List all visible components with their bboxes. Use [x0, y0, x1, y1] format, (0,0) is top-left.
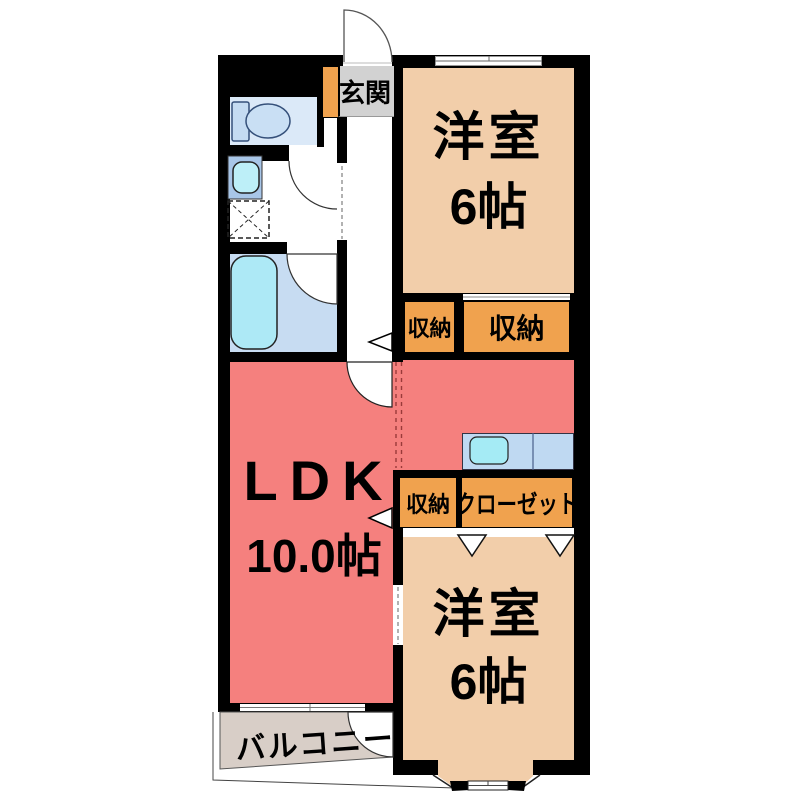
- bathroom: [230, 254, 337, 352]
- washing-machine-pan-icon: [228, 201, 269, 238]
- washbasin-unit-icon: [228, 156, 262, 199]
- door-ldk-bedroom-sliding: [393, 585, 403, 645]
- western-room-bottom-label: 洋室: [403, 578, 574, 640]
- window-to-balcony: [240, 704, 365, 711]
- wall-bath-right: [337, 254, 347, 360]
- bay-window-corner-right: [508, 781, 526, 791]
- washbasin-sink-icon: [233, 162, 259, 193]
- entrance-door-arc: [344, 10, 392, 62]
- ldk-size: 10.0帖: [220, 524, 408, 582]
- wall-right: [574, 55, 590, 775]
- wall-bath-bottom: [218, 352, 347, 362]
- ldk-label: LDK: [225, 448, 403, 512]
- bay-window-glass: [468, 781, 508, 790]
- western-room-bottom-size: 6帖: [403, 648, 574, 708]
- floor-plan: 玄関 洋室 6帖 収納 収納 LDK 10.0帖 収納 クローゼット 洋室 6帖…: [0, 0, 800, 800]
- entrance-label: 玄関: [338, 66, 392, 116]
- storage-mid-label: 収納: [400, 478, 456, 527]
- wall-wash-bath-divider: [218, 242, 287, 254]
- storage-top-small-label: 収納: [405, 302, 454, 352]
- storage-top-large-label: 収納: [464, 302, 569, 352]
- bay-window-glass-line: [468, 781, 508, 786]
- wall-top-left-block: [218, 55, 323, 97]
- wall-hall-left-upper: [337, 116, 347, 165]
- wall-hall-left-mid: [337, 240, 347, 254]
- closet-door-band: [403, 528, 574, 537]
- western-room-top-size: 6帖: [403, 172, 574, 234]
- kitchen-counter: [462, 433, 574, 470]
- door-swing-marker-hall: [369, 333, 392, 351]
- western-room-top-label: 洋室: [403, 100, 574, 164]
- washing-machine-cross-icon: [228, 201, 269, 238]
- balcony-label: バルコニー: [229, 712, 402, 769]
- bay-window-sides: [433, 775, 540, 790]
- toilet-room: [230, 95, 317, 145]
- wall-bottom-room-bottom: [403, 760, 590, 775]
- window-above-closets: [463, 294, 570, 300]
- closet-label: クローゼット: [469, 478, 566, 527]
- window-top-room: [435, 56, 542, 66]
- wall-toilet-bottom: [218, 145, 289, 161]
- toilet-door-arc: [289, 161, 337, 209]
- door-washroom-sliding: [337, 163, 347, 240]
- bay-window-corner-left: [450, 781, 470, 791]
